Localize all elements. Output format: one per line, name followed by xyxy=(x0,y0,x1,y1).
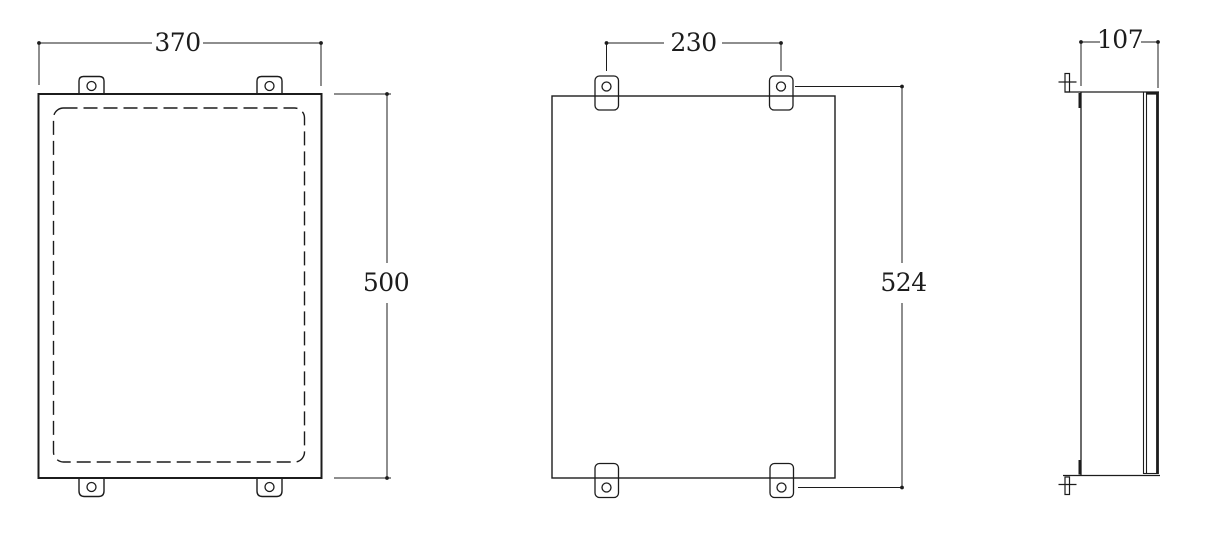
front-door-gasket-dashed-outline xyxy=(54,108,305,462)
dimension-label-front-width: 370 xyxy=(154,28,200,57)
dimension-label-front-height: 500 xyxy=(363,268,409,297)
front-mounting-tab-bottom-right xyxy=(257,478,282,497)
back-mounting-hole-top-left xyxy=(602,82,611,91)
front-mounting-hole-top-left xyxy=(87,82,96,91)
back-panel-outline xyxy=(552,96,835,478)
back-mounting-tab-top-right xyxy=(770,76,794,110)
side-mounting-bracket-top xyxy=(1065,74,1070,93)
front-view: 370 500 xyxy=(37,28,409,497)
side-mounting-bracket-bottom xyxy=(1065,477,1070,495)
dimension-terminator xyxy=(1156,40,1160,44)
dimension-terminator xyxy=(385,92,389,96)
dimension-terminator xyxy=(605,41,609,45)
dimension-terminator xyxy=(385,476,389,480)
front-height-dimension: 500 xyxy=(334,92,409,480)
dimension-label-back-hole-spacing-width: 230 xyxy=(670,28,716,57)
front-enclosure-outline xyxy=(39,94,322,478)
front-mounting-tab-top-left xyxy=(79,77,104,95)
back-mounting-hole-bottom-right xyxy=(777,483,786,492)
front-mounting-hole-top-right xyxy=(265,82,274,91)
side-door-face-edge xyxy=(1147,93,1158,474)
dimension-label-side-depth: 107 xyxy=(1097,25,1143,54)
front-mounting-tab-bottom-left xyxy=(79,478,104,497)
front-mounting-hole-bottom-left xyxy=(87,483,96,492)
dimension-terminator xyxy=(900,85,904,89)
side-view: 107 xyxy=(1059,25,1161,495)
dimension-terminator xyxy=(319,41,323,45)
back-mounting-tab-top-left xyxy=(595,76,619,110)
side-depth-dimension: 107 xyxy=(1079,25,1160,88)
back-hole-spacing-height-dimension: 524 xyxy=(795,85,927,490)
back-mounting-hole-top-right xyxy=(777,82,786,91)
back-hole-spacing-width-dimension: 230 xyxy=(605,28,783,71)
front-mounting-tab-top-right xyxy=(257,77,282,95)
enclosure-three-view-drawing: 370 500 xyxy=(0,0,1210,552)
dimension-terminator xyxy=(900,486,904,490)
dimension-label-back-hole-spacing-height: 524 xyxy=(880,268,926,297)
back-view: 230 524 xyxy=(552,28,927,498)
dimension-terminator xyxy=(1079,40,1083,44)
technical-drawing-canvas: 370 500 xyxy=(0,0,1210,552)
front-mounting-hole-bottom-right xyxy=(265,483,274,492)
back-mounting-hole-bottom-left xyxy=(602,483,611,492)
dimension-terminator xyxy=(37,41,41,45)
dimension-terminator xyxy=(779,41,783,45)
